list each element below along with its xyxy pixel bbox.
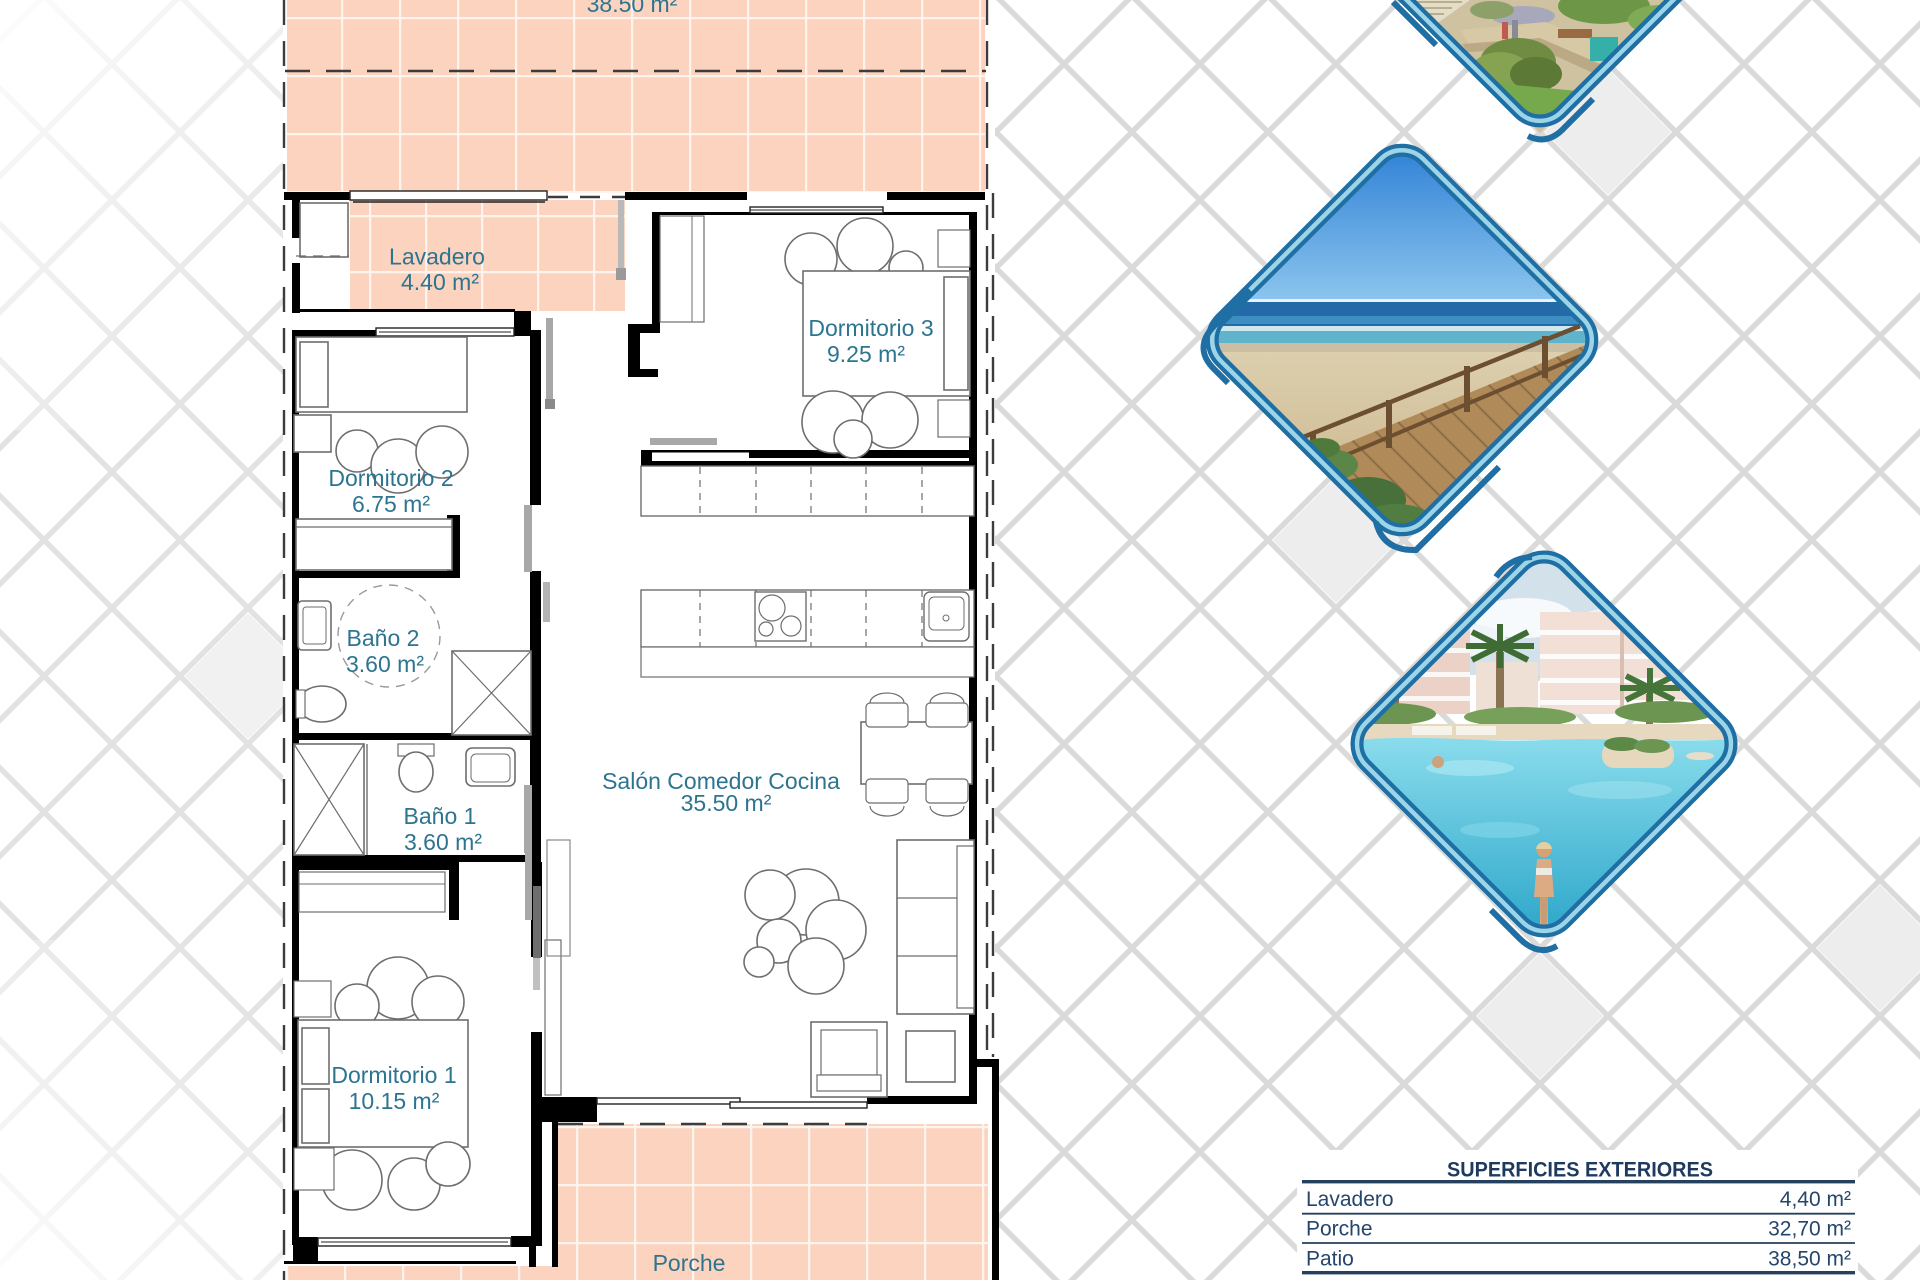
- svg-text:4,40 m²: 4,40 m²: [1780, 1188, 1851, 1211]
- svg-text:Dormitorio 3: Dormitorio 3: [808, 315, 933, 341]
- svg-text:Lavadero: Lavadero: [1306, 1188, 1394, 1211]
- svg-text:3.60 m²: 3.60 m²: [346, 651, 424, 677]
- svg-text:Porche: Porche: [653, 1250, 726, 1276]
- svg-text:Porche: Porche: [1306, 1218, 1373, 1241]
- svg-text:3.60 m²: 3.60 m²: [404, 829, 482, 855]
- svg-text:Dormitorio 1: Dormitorio 1: [331, 1062, 456, 1088]
- svg-text:Baño 2: Baño 2: [347, 625, 420, 651]
- svg-text:35.50 m²: 35.50 m²: [681, 790, 772, 816]
- svg-text:9.25 m²: 9.25 m²: [827, 341, 905, 367]
- svg-text:Patio: Patio: [1306, 1247, 1354, 1270]
- svg-text:38.50 m²: 38.50 m²: [587, 0, 678, 17]
- svg-text:32,70 m²: 32,70 m²: [1768, 1218, 1851, 1241]
- svg-text:38,50 m²: 38,50 m²: [1768, 1247, 1851, 1270]
- svg-text:Lavadero: Lavadero: [389, 244, 485, 270]
- svg-text:4.40 m²: 4.40 m²: [401, 269, 479, 295]
- svg-text:Baño 1: Baño 1: [404, 803, 477, 829]
- svg-text:6.75 m²: 6.75 m²: [352, 491, 430, 517]
- svg-text:Dormitorio 2: Dormitorio 2: [328, 465, 453, 491]
- svg-text:10.15 m²: 10.15 m²: [349, 1088, 440, 1114]
- svg-text:SUPERFICIES EXTERIORES: SUPERFICIES EXTERIORES: [1447, 1158, 1713, 1182]
